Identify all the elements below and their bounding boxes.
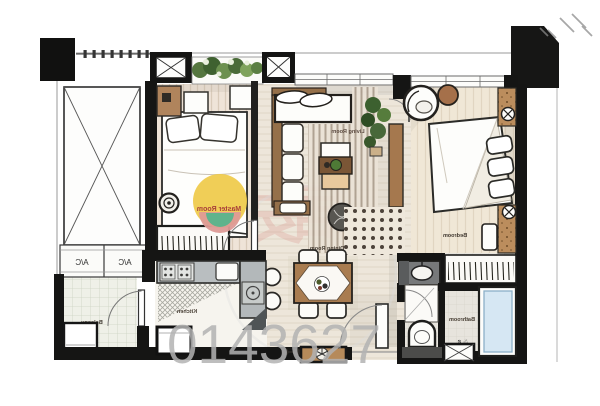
- svg-text:Bathroom: Bathroom: [449, 317, 475, 323]
- svg-text:0143627: 0143627: [167, 313, 381, 375]
- svg-text:A/C: A/C: [118, 258, 132, 267]
- svg-text:Bedroom: Bedroom: [443, 233, 467, 239]
- svg-text:A/C: A/C: [75, 258, 89, 267]
- svg-text:Master Room: Master Room: [197, 206, 241, 213]
- svg-text:Living Room: Living Room: [331, 129, 364, 135]
